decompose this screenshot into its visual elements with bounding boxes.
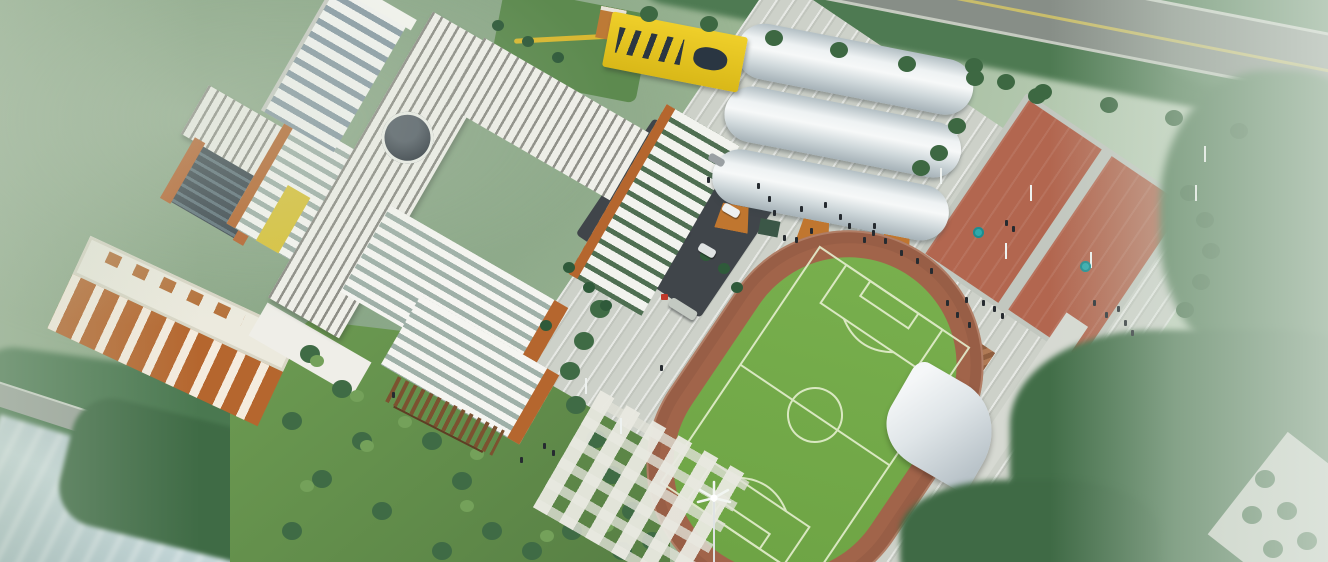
campus-aerial-rendering: Bird's-eye architectural rendering of a … <box>0 0 1328 562</box>
floodlight-star <box>694 480 734 562</box>
gate-emblem <box>692 45 730 73</box>
people-figures <box>0 0 3 6</box>
halfway-line <box>740 365 889 466</box>
red-kiosk <box>661 294 668 300</box>
umbrella-teal <box>973 227 984 238</box>
umbrella-teal <box>1080 261 1091 272</box>
gate-louvers <box>615 27 685 65</box>
roof-oculus <box>372 102 443 173</box>
floodlight-mast <box>694 480 734 562</box>
goal-area-north <box>860 281 918 328</box>
tree-mass-south <box>900 480 1160 562</box>
penalty-arc-north <box>838 319 893 361</box>
